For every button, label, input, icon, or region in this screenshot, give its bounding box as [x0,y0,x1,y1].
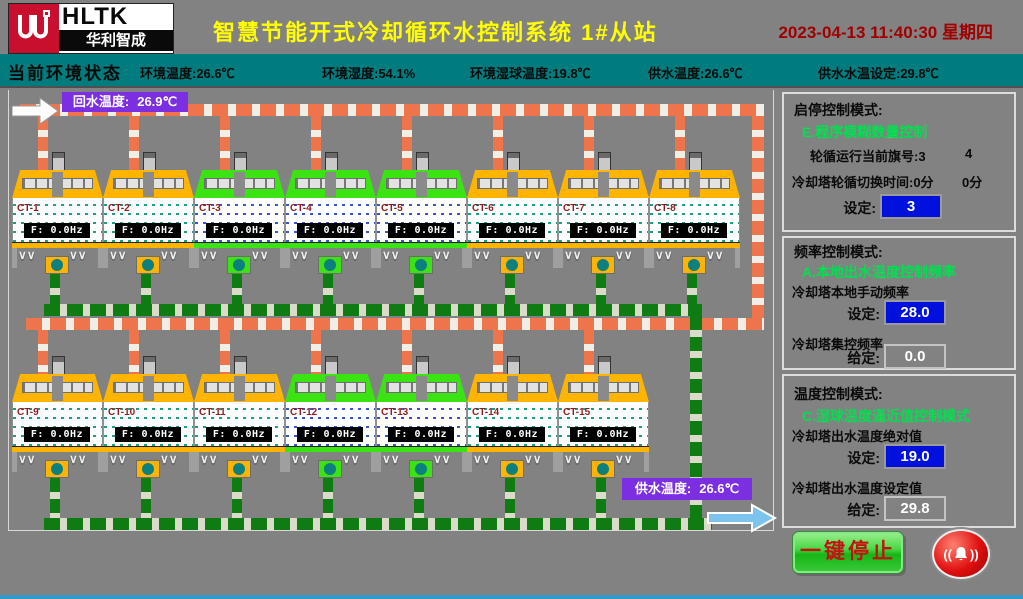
give-value-display: 0.0 [884,344,946,369]
fan-deck [558,170,649,198]
fan-hub-icon [52,376,63,401]
tower-post-left [103,248,108,268]
tower-id-label: CT-14 [472,407,499,418]
cooling-tower: CT-14F: 0.0Hz∨∨∨∨ [467,356,558,480]
outlet-valve-icon [227,460,251,478]
fan-deck [376,170,467,198]
datetime-display: 2023-04-13 11:40:30 星期四 [778,18,993,43]
panel-section: 频率控制模式:A.本地出水温度控制频率冷却塔本地手动频率设定:28.0冷却塔集控… [782,236,1016,370]
panel-field-label: 设定: [820,304,880,324]
tower-id-label: CT-4 [290,203,312,214]
tower-id-label: CT-7 [563,203,585,214]
panel-field-label: 给定: [820,348,880,368]
panel-info-extra: 4 [965,146,972,161]
tower-drain-pipe [505,478,515,518]
header: HLTK 华利智成 智慧节能开式冷却循环水控制系统 1#从站 2023-04-1… [0,0,1023,54]
tower-frequency-display: F: 0.0Hz [206,223,272,238]
drain-chevrons-right: ∨∨ [433,452,451,466]
tower-frequency-display: F: 0.0Hz [297,223,363,238]
tower-post-left [376,452,381,472]
drain-chevrons-left: ∨∨ [382,248,400,262]
cooling-tower: CT-6F: 0.0Hz∨∨∨∨ [467,152,558,276]
tower-post-left [376,248,381,268]
tower-post-left [467,248,472,268]
alarm-wave-left: (( [943,548,952,561]
outlet-pipe-bottom [44,518,712,530]
tower-frequency-display: F: 0.0Hz [570,427,636,442]
outlet-valve-icon [682,256,706,274]
panel-field-caption: 冷却塔出水温度设定值 [792,478,922,497]
outlet-valve-icon [318,256,342,274]
tower-frequency-display: F: 0.0Hz [661,223,727,238]
fan-deck [12,170,103,198]
fan-deck [194,170,285,198]
tower-drain-pipe [232,274,242,304]
panel-mode-text: E.程序模糊数量控制 [802,122,927,142]
panel-section-title: 启停控制模式: [794,100,883,120]
cooling-tower: CT-11F: 0.0Hz∨∨∨∨ [194,356,285,480]
tower-post-left [194,452,199,472]
fan-deck [103,374,194,402]
tower-drain-pipe [596,478,606,518]
fan-hub-icon [234,172,245,197]
tower-id-label: CT-10 [108,407,135,418]
drain-chevrons-right: ∨∨ [524,452,542,466]
outlet-valve-icon [318,460,342,478]
fan-deck [285,374,376,402]
drain-chevrons-right: ∨∨ [69,248,87,262]
env-item: 环境湿度:54.1% [322,63,415,82]
tower-frequency-display: F: 0.0Hz [479,427,545,442]
drain-chevrons-right: ∨∨ [160,248,178,262]
cooling-tower: CT-10F: 0.0Hz∨∨∨∨ [103,356,194,480]
supply-water-outlet-arrow [706,502,778,534]
set-value-input[interactable]: 19.0 [884,444,946,469]
tower-post-left [103,452,108,472]
tower-post-left [285,248,290,268]
drain-chevrons-left: ∨∨ [18,452,36,466]
return-water-temp-tag: 回水温度: 26.9℃ [62,92,188,112]
alarm-button[interactable]: (( )) [932,529,990,579]
fan-deck [194,374,285,402]
tower-id-label: CT-1 [17,203,39,214]
page-title: 智慧节能开式冷却循环水控制系统 1#从站 [213,15,658,47]
tower-frequency-display: F: 0.0Hz [115,223,181,238]
tower-drain-pipe [232,478,242,518]
tower-frequency-display: F: 0.0Hz [570,223,636,238]
tower-drain-pipe [141,478,151,518]
cooling-tower: CT-8F: 0.0Hz∨∨∨∨ [649,152,740,276]
alarm-bell-icon [953,546,969,562]
tower-post-right [644,452,649,472]
tower-post-left [558,248,563,268]
drain-chevrons-left: ∨∨ [109,452,127,466]
return-water-pipe-row2 [26,318,764,330]
drain-chevrons-left: ∨∨ [18,248,36,262]
tower-drain-pipe [687,274,697,304]
drain-chevrons-left: ∨∨ [564,452,582,466]
logo-icon [9,4,59,53]
tower-body: CT-1F: 0.0Hz [12,198,103,242]
tower-drain-pipe [505,274,515,304]
cooling-tower: CT-2F: 0.0Hz∨∨∨∨ [103,152,194,276]
fan-deck [103,170,194,198]
outlet-valve-icon [409,460,433,478]
supply-water-temp-label: 供水温度: [635,478,691,500]
cooling-tower: CT-4F: 0.0Hz∨∨∨∨ [285,152,376,276]
drain-chevrons-left: ∨∨ [291,248,309,262]
tower-body: CT-6F: 0.0Hz [467,198,558,242]
tower-body: CT-11F: 0.0Hz [194,402,285,446]
tower-drain-pipe [414,274,424,304]
fan-hub-icon [416,376,427,401]
env-state-label: 当前环境状态 [8,59,122,84]
fan-hub-icon [325,376,336,401]
environment-status-bar: 当前环境状态 环境温度:26.6℃环境湿度:54.1%环境湿球温度:19.8℃供… [0,54,1023,88]
outlet-valve-icon [500,256,524,274]
fan-hub-icon [689,172,700,197]
cooling-tower: CT-9F: 0.0Hz∨∨∨∨ [12,356,103,480]
drain-chevrons-right: ∨∨ [342,452,360,466]
panel-field-caption: 冷却塔出水温度绝对值 [792,426,922,445]
supply-water-temp-value: 26.6℃ [699,478,739,500]
window-bottom-edge [0,595,1023,599]
outlet-valve-icon [227,256,251,274]
drain-chevrons-right: ∨∨ [524,248,542,262]
tower-body: CT-12F: 0.0Hz [285,402,376,446]
fan-deck [649,170,740,198]
panel-section: 启停控制模式:E.程序模糊数量控制轮循运行当前旗号:34冷却塔轮循切换时间:0分… [782,92,1016,232]
set-value-input[interactable]: 3 [880,194,942,219]
hmi-screen: HLTK 华利智成 智慧节能开式冷却循环水控制系统 1#从站 2023-04-1… [0,0,1023,599]
fan-hub-icon [325,172,336,197]
env-item: 供水水温设定:29.8℃ [818,63,939,82]
panel-field-caption: 冷却塔本地手动频率 [792,282,909,301]
give-value-display: 29.8 [884,496,946,521]
drain-chevrons-left: ∨∨ [473,452,491,466]
outlet-valve-icon [136,256,160,274]
tower-drain-pipe [50,274,60,304]
tower-body: CT-5F: 0.0Hz [376,198,467,242]
fan-hub-icon [507,376,518,401]
tower-post-left [194,248,199,268]
outlet-valve-icon [409,256,433,274]
outlet-valve-icon [591,460,615,478]
drain-chevrons-right: ∨∨ [251,248,269,262]
tower-frequency-display: F: 0.0Hz [388,223,454,238]
tower-body: CT-2F: 0.0Hz [103,198,194,242]
fan-hub-icon [507,172,518,197]
tower-post-left [12,248,17,268]
panel-field-label: 设定: [820,448,880,468]
drain-chevrons-right: ∨∨ [433,248,451,262]
logo-text: HLTK 华利智成 [59,4,173,53]
drain-chevrons-left: ∨∨ [655,248,673,262]
fan-deck [467,374,558,402]
tower-body: CT-10F: 0.0Hz [103,402,194,446]
panel-section-title: 温度控制模式: [794,384,883,404]
tower-id-label: CT-15 [563,407,590,418]
one-key-stop-button[interactable]: 一键停止 [792,531,904,574]
set-value-input[interactable]: 28.0 [884,300,946,325]
cooling-tower: CT-1F: 0.0Hz∨∨∨∨ [12,152,103,276]
drain-chevrons-right: ∨∨ [615,452,633,466]
drain-chevrons-left: ∨∨ [109,248,127,262]
tower-id-label: CT-6 [472,203,494,214]
tower-post-left [558,452,563,472]
env-item: 环境湿球温度:19.8℃ [470,63,591,82]
outlet-pipe-row1 [44,304,702,316]
drain-chevrons-left: ∨∨ [291,452,309,466]
fan-hub-icon [143,172,154,197]
env-item: 供水温度:26.6℃ [648,63,743,82]
fan-hub-icon [52,172,63,197]
tower-frequency-display: F: 0.0Hz [206,427,272,442]
tower-post-left [649,248,654,268]
alarm-wave-right: )) [970,548,979,561]
tower-drain-pipe [323,274,333,304]
drain-chevrons-right: ∨∨ [615,248,633,262]
tower-frequency-display: F: 0.0Hz [24,427,90,442]
fan-deck [12,374,103,402]
outlet-valve-icon [45,256,69,274]
drain-chevrons-left: ∨∨ [200,248,218,262]
tower-post-left [285,452,290,472]
tower-body: CT-13F: 0.0Hz [376,402,467,446]
outlet-valve-icon [591,256,615,274]
outlet-valve-icon [136,460,160,478]
return-water-temp-label: 回水温度: [73,92,129,112]
panel-section-title: 频率控制模式: [794,242,883,262]
tower-post-right [735,248,740,268]
tower-id-label: CT-5 [381,203,403,214]
return-water-pipe-right-drop [752,116,764,318]
cooling-tower: CT-5F: 0.0Hz∨∨∨∨ [376,152,467,276]
cooling-tower: CT-15F: 0.0Hz∨∨∨∨ [558,356,649,480]
tower-id-label: CT-8 [654,203,676,214]
tower-body: CT-7F: 0.0Hz [558,198,649,242]
panel-info-text: 冷却塔轮循切换时间:0分 [792,172,934,191]
tower-id-label: CT-11 [199,407,226,418]
fan-hub-icon [598,172,609,197]
tower-frequency-display: F: 0.0Hz [115,427,181,442]
drain-chevrons-right: ∨∨ [69,452,87,466]
tower-drain-pipe [323,478,333,518]
return-water-temp-value: 26.9℃ [137,92,177,112]
tower-frequency-display: F: 0.0Hz [297,427,363,442]
tower-body: CT-3F: 0.0Hz [194,198,285,242]
panel-info-extra: 0分 [962,172,982,191]
fan-deck [558,374,649,402]
fan-deck [285,170,376,198]
cooling-tower: CT-13F: 0.0Hz∨∨∨∨ [376,356,467,480]
tower-drain-pipe [596,274,606,304]
tower-frequency-display: F: 0.0Hz [479,223,545,238]
panel-info-text: 轮循运行当前旗号:3 [810,146,926,165]
tower-body: CT-14F: 0.0Hz [467,402,558,446]
panel-field-label: 设定: [816,198,876,218]
panel-mode-text: A.本地出水温度控制频率 [802,262,956,282]
outlet-valve-icon [45,460,69,478]
tower-post-left [12,452,17,472]
env-item: 环境温度:26.6℃ [140,63,235,82]
cooling-tower: CT-7F: 0.0Hz∨∨∨∨ [558,152,649,276]
tower-id-label: CT-3 [199,203,221,214]
tower-drain-pipe [50,478,60,518]
fan-deck [376,374,467,402]
fan-hub-icon [416,172,427,197]
tower-id-label: CT-9 [17,407,39,418]
fan-hub-icon [598,376,609,401]
drain-chevrons-left: ∨∨ [564,248,582,262]
tower-id-label: CT-12 [290,407,317,418]
return-water-inlet-arrow [12,96,60,126]
tower-post-left [467,452,472,472]
fan-hub-icon [234,376,245,401]
tower-body: CT-8F: 0.0Hz [649,198,740,242]
drain-chevrons-right: ∨∨ [160,452,178,466]
tower-id-label: CT-2 [108,203,130,214]
panel-section: 温度控制模式:C.湿球温度逼近值控制模式冷却塔出水温度绝对值设定:19.0冷却塔… [782,374,1016,528]
tower-frequency-display: F: 0.0Hz [24,223,90,238]
tower-drain-pipe [414,478,424,518]
drain-chevrons-right: ∨∨ [342,248,360,262]
tower-frequency-display: F: 0.0Hz [388,427,454,442]
panel-mode-text: C.湿球温度逼近值控制模式 [802,406,970,426]
tower-body: CT-4F: 0.0Hz [285,198,376,242]
cooling-tower: CT-3F: 0.0Hz∨∨∨∨ [194,152,285,276]
tower-drain-pipe [141,274,151,304]
logo-brand: HLTK [59,4,173,30]
drain-chevrons-right: ∨∨ [251,452,269,466]
cooling-tower: CT-12F: 0.0Hz∨∨∨∨ [285,356,376,480]
company-logo: HLTK 华利智成 [8,3,174,54]
tower-body: CT-9F: 0.0Hz [12,402,103,446]
outlet-valve-icon [500,460,524,478]
drain-chevrons-left: ∨∨ [200,452,218,466]
supply-water-temp-tag: 供水温度: 26.6℃ [622,478,752,500]
logo-brand-cn: 华利智成 [59,30,173,51]
drain-chevrons-left: ∨∨ [382,452,400,466]
drain-chevrons-right: ∨∨ [706,248,724,262]
tower-id-label: CT-13 [381,407,408,418]
panel-field-label: 给定: [820,500,880,520]
fan-hub-icon [143,376,154,401]
fan-deck [467,170,558,198]
drain-chevrons-left: ∨∨ [473,248,491,262]
tower-body: CT-15F: 0.0Hz [558,402,649,446]
